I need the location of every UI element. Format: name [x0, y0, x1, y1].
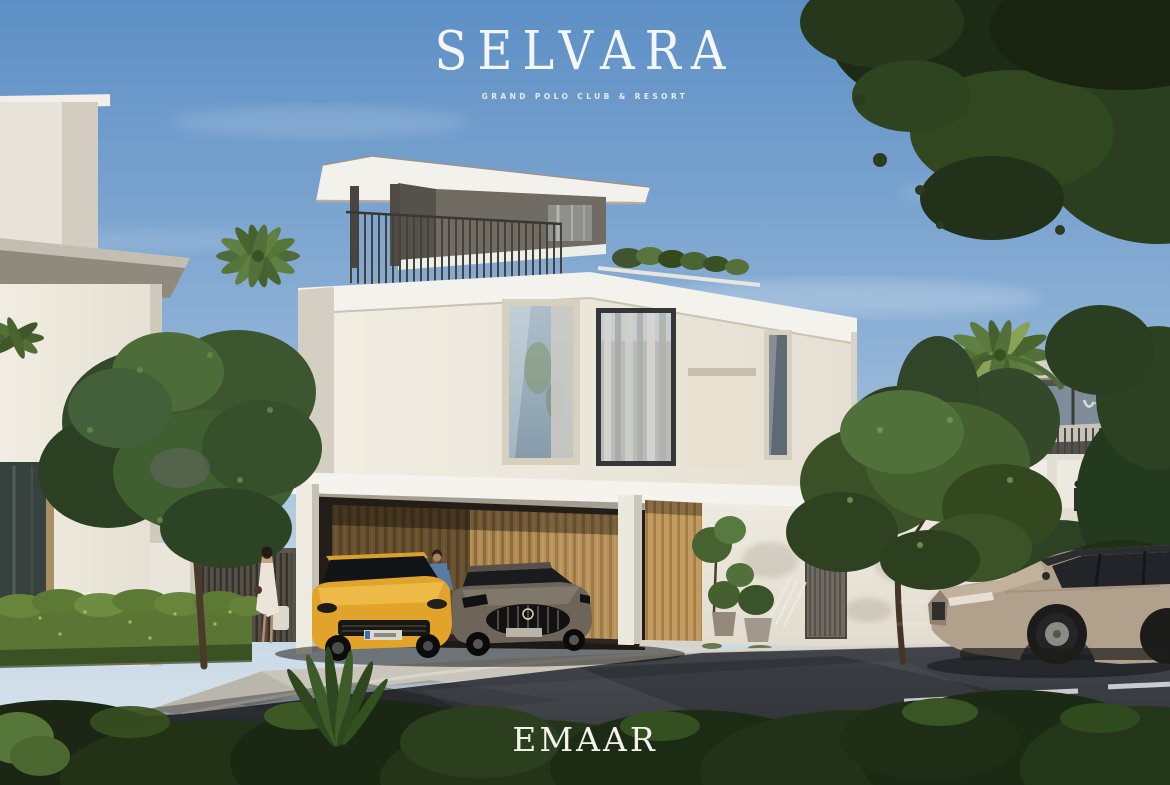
window-1 — [502, 299, 580, 465]
window-2 — [596, 308, 676, 466]
render-scene: SELVARA GRAND POLO CLUB & RESORT EMAAR — [0, 0, 1170, 785]
window-3 — [764, 330, 792, 460]
carport-column-center — [618, 495, 642, 645]
facade-panel — [688, 368, 756, 468]
entrance-door — [639, 500, 708, 649]
yellow-suv — [312, 552, 452, 661]
scene-canvas — [0, 0, 1170, 785]
